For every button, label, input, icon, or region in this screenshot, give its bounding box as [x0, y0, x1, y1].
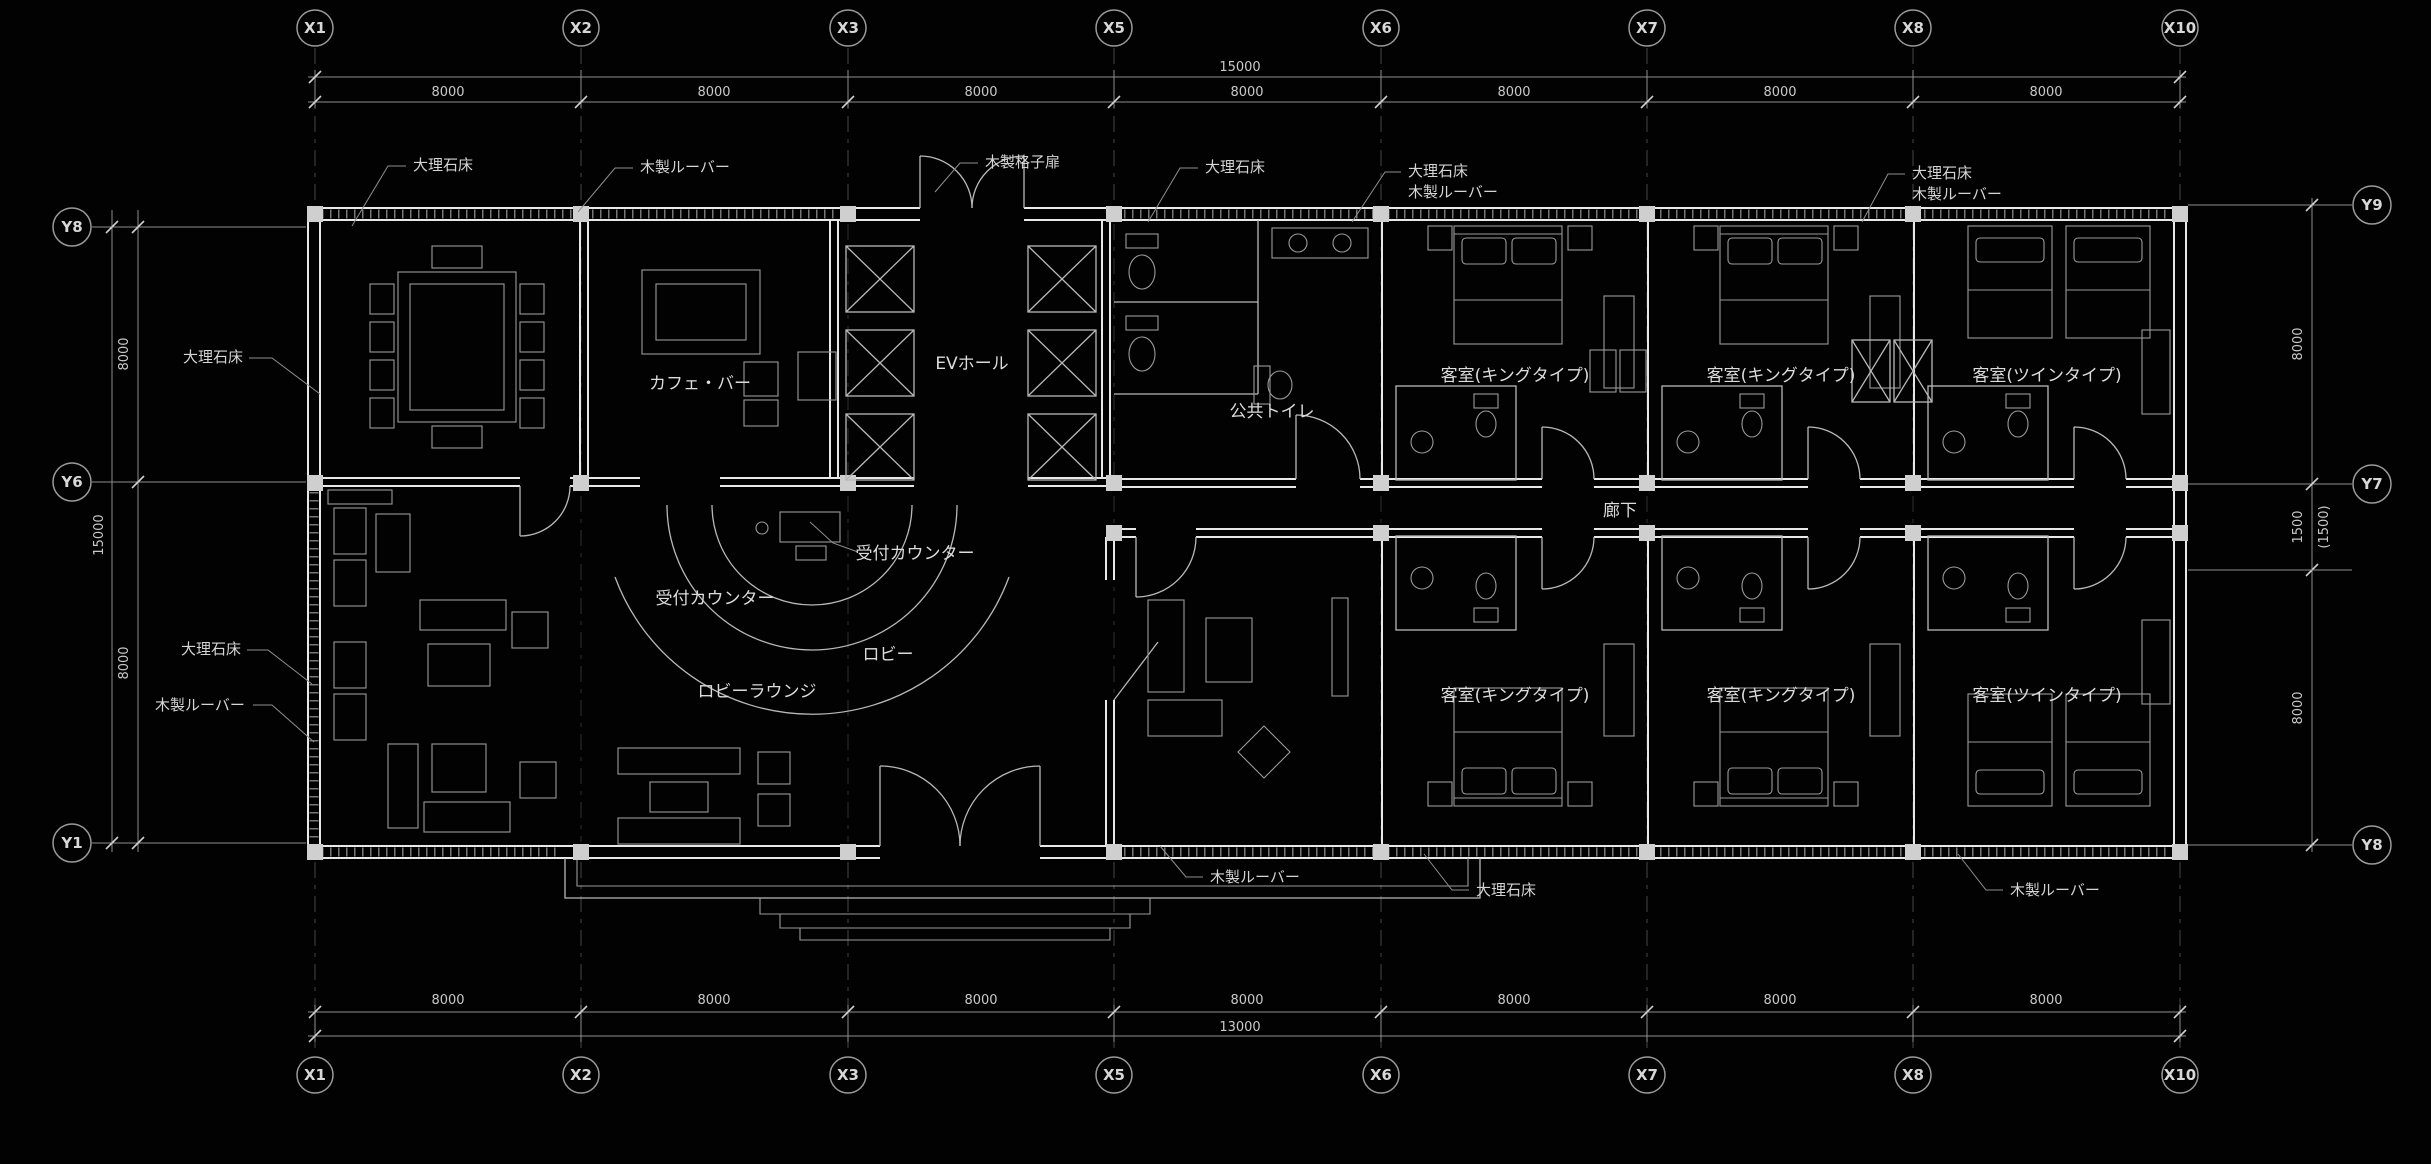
dim-bottom-span-7: 8000: [2029, 993, 2062, 1008]
guest-room-king-top-1: [1396, 226, 1634, 480]
nightstand: [1834, 782, 1858, 806]
annotation-wood-louver-bottom-left: 木製ルーバー: [1210, 868, 1300, 886]
guest-room-king-top-2: [1662, 226, 1900, 480]
room-label-king-bottom-1: 客室(キングタイプ): [1441, 686, 1590, 706]
nightstand: [1568, 782, 1592, 806]
public-toilet-room: [1126, 228, 1368, 404]
nightstand: [1834, 226, 1858, 250]
axis-label-y7-right: Y7: [2360, 475, 2382, 493]
room-label-reception-counter-2: 受付カウンター: [656, 589, 775, 609]
elevator-shaft: [1028, 246, 1096, 312]
bed: [1454, 226, 1562, 344]
room-label-ev-hall: EVホール: [935, 354, 1008, 374]
axis-label-x10-top: X10: [2164, 19, 2196, 37]
dim-top-span-4: 8000: [1230, 85, 1263, 100]
axis-label-y6-left: Y6: [60, 473, 82, 491]
bathroom: [1662, 386, 1782, 480]
room-label-king-top-2: 客室(キングタイプ): [1707, 366, 1856, 386]
axis-label-x5-bottom: X5: [1103, 1066, 1125, 1084]
x-grid-bottom: X1 X2 X3 X5 X6 X7 X8 X10: [297, 1057, 2198, 1093]
bed: [2066, 226, 2150, 338]
finish-annotations: 大理石床 木製ルーバー 木製格子扉 大理石床 大理石床 木製ルーバー 大理石床 …: [155, 153, 2100, 899]
bathroom: [1928, 536, 2048, 630]
doors: [520, 156, 2126, 846]
annotation-wood-louver-left: 木製ルーバー: [155, 696, 245, 714]
dim-top-span-3: 8000: [964, 85, 997, 100]
axis-label-y8-right: Y8: [2360, 836, 2382, 854]
room-label-king-top-1: 客室(キングタイプ): [1441, 366, 1590, 386]
elevator-shaft: [846, 246, 914, 312]
room-label-cafe-bar: カフェ・バー: [649, 374, 751, 394]
dim-top-span-1: 8000: [431, 85, 464, 100]
annotation-wood-louver-bottom-right: 木製ルーバー: [2010, 881, 2100, 899]
floor-plan-drawing: X1 X2 X3 X5 X6 X7 X8 X10 X1 X2 X3 X5 X6 …: [0, 0, 2431, 1164]
y-grid-left: Y8 Y6 Y1: [53, 208, 91, 862]
nightstand: [1428, 226, 1452, 250]
room-label-king-bottom-2: 客室(キングタイプ): [1707, 686, 1856, 706]
annotation-wood-louver-top-right1: 木製ルーバー: [1408, 183, 1498, 201]
grid-centerlines: [92, 48, 2352, 1054]
annotation-wood-lattice-door: 木製格子扉: [985, 153, 1060, 171]
lounge-furniture: [328, 490, 556, 832]
dim-bottom-span-3: 8000: [964, 993, 997, 1008]
dim-right-span-1: 8000: [2291, 327, 2306, 360]
axis-label-x1-top: X1: [304, 19, 326, 37]
axis-label-x3-bottom: X3: [837, 1066, 859, 1084]
room-label-reception-counter-1: 受付カウンター: [856, 544, 975, 564]
annotation-marble-floor-top-right1: 大理石床: [1408, 162, 1468, 180]
nightstand: [1428, 782, 1452, 806]
meeting-room-furniture: [370, 246, 544, 448]
bathroom: [1928, 386, 2048, 480]
dim-bottom-span-2: 8000: [697, 993, 730, 1008]
bed: [1720, 226, 1828, 344]
axis-label-x2-bottom: X2: [570, 1066, 592, 1084]
elevator-shaft: [846, 330, 914, 396]
annotation-marble-floor-top-mid: 大理石床: [1205, 158, 1265, 176]
bathroom: [1396, 386, 1516, 480]
floor-plan-page: X1 X2 X3 X5 X6 X7 X8 X10 X1 X2 X3 X5 X6 …: [0, 0, 2431, 1164]
bed: [1968, 226, 2052, 338]
annotation-wood-louver-top-right2: 木製ルーバー: [1912, 185, 2002, 203]
dim-right-span-3: (1500): [2317, 505, 2332, 548]
axis-label-x3-top: X3: [837, 19, 859, 37]
room-label-lobby-lounge: ロビーラウンジ: [698, 682, 817, 702]
dim-left-span-1: 8000: [117, 337, 132, 370]
guest-room-twin-top: [1928, 226, 2170, 480]
axis-label-x7-top: X7: [1636, 19, 1658, 37]
dim-bottom-span-5: 8000: [1497, 993, 1530, 1008]
axis-label-x7-bottom: X7: [1636, 1066, 1658, 1084]
nightstand: [1694, 226, 1718, 250]
annotation-marble-floor-left2: 大理石床: [181, 640, 241, 658]
dim-bottom-total: 13000: [1219, 1020, 1260, 1035]
guest-room-king-bottom-2: [1662, 536, 1900, 806]
dim-bottom-span-6: 8000: [1763, 993, 1796, 1008]
dim-left: 8000 8000 15000: [92, 210, 144, 852]
nightstand: [1568, 226, 1592, 250]
guest-room-twin-bottom: [1928, 536, 2170, 806]
dim-top-span-7: 8000: [2029, 85, 2062, 100]
dim-right-span-4: 8000: [2291, 691, 2306, 724]
room-label-twin-top: 客室(ツインタイプ): [1972, 366, 2121, 386]
dim-bottom: 8000 8000 8000 8000 8000 8000 8000 13000: [308, 993, 2186, 1042]
dim-left-total: 15000: [92, 514, 107, 555]
dim-left-span-2: 8000: [117, 646, 132, 679]
dim-top-total: 15000: [1219, 60, 1260, 75]
annotation-marble-floor-top-left: 大理石床: [413, 156, 473, 174]
dim-top: 8000 8000 8000 8000 8000 8000 8000 15000: [308, 60, 2186, 108]
axis-label-x2-top: X2: [570, 19, 592, 37]
room-label-corridor: 廊下: [1603, 501, 1637, 521]
axis-label-x1-bottom: X1: [304, 1066, 326, 1084]
dim-bottom-span-1: 8000: [431, 993, 464, 1008]
elevator-shaft: [1028, 414, 1096, 480]
annotation-marble-floor-top-right2: 大理石床: [1912, 164, 1972, 182]
y-grid-right: Y9 Y7 Y8: [2353, 186, 2391, 864]
annotation-wood-louver-top: 木製ルーバー: [640, 158, 730, 176]
annotation-marble-floor-left1: 大理石床: [183, 348, 243, 366]
nightstand: [1694, 782, 1718, 806]
bed: [1968, 694, 2052, 806]
axis-label-x6-top: X6: [1370, 19, 1392, 37]
dim-top-span-6: 8000: [1763, 85, 1796, 100]
bathroom: [1662, 536, 1782, 630]
axis-label-y8-left: Y8: [60, 218, 82, 236]
bed: [2066, 694, 2150, 806]
axis-label-x6-bottom: X6: [1370, 1066, 1392, 1084]
dim-top-span-5: 8000: [1497, 85, 1530, 100]
axis-label-x8-top: X8: [1902, 19, 1924, 37]
room-label-lobby: ロビー: [863, 645, 914, 665]
dim-right-span-2: 1500: [2291, 510, 2306, 543]
guest-room-king-bottom-1: [1396, 536, 1634, 806]
elevator-shaft: [846, 414, 914, 480]
elevator-shaft: [1028, 330, 1096, 396]
axis-label-y9-right: Y9: [2360, 196, 2382, 214]
room-label-twin-bottom: 客室(ツインタイプ): [1972, 686, 2121, 706]
axis-label-x8-bottom: X8: [1902, 1066, 1924, 1084]
bathroom: [1396, 536, 1516, 630]
dim-top-span-2: 8000: [697, 85, 730, 100]
x-grid-top: X1 X2 X3 X5 X6 X7 X8 X10: [297, 10, 2198, 46]
axis-label-x10-bottom: X10: [2164, 1066, 2196, 1084]
suite-living-furniture: [1148, 598, 1348, 778]
entrance-porch: [565, 858, 1480, 940]
cafe-bar-furniture: [642, 270, 836, 426]
dim-bottom-span-4: 8000: [1230, 993, 1263, 1008]
room-label-public-toilet: 公共トイレ: [1230, 402, 1315, 422]
annotation-marble-floor-bottom: 大理石床: [1476, 881, 1536, 899]
axis-label-x5-top: X5: [1103, 19, 1125, 37]
axis-label-y1-left: Y1: [60, 834, 82, 852]
lobby-lounge-furniture: [618, 748, 790, 844]
dim-right: 8000 1500 (1500) 8000: [2188, 198, 2352, 852]
